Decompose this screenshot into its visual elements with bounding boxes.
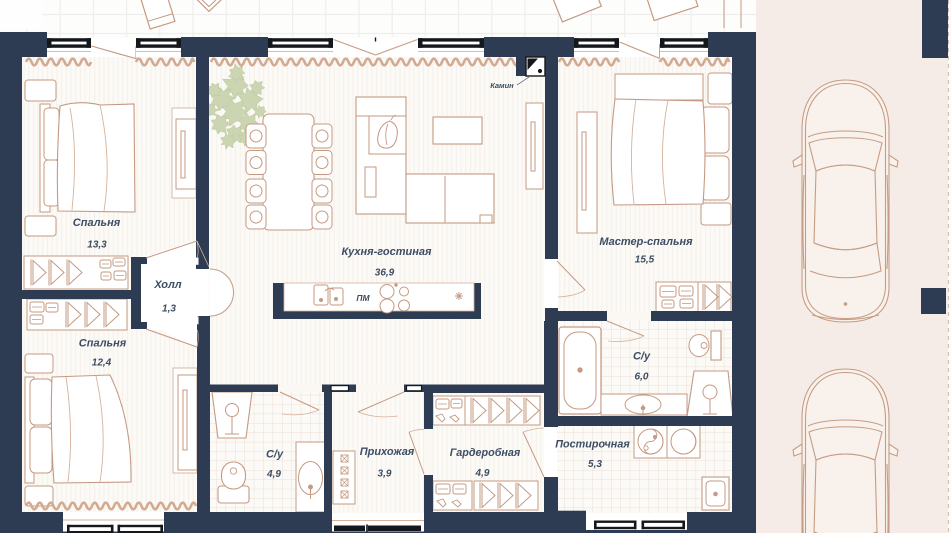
svg-text:Мастер-спальня: Мастер-спальня <box>599 236 693 248</box>
svg-text:ПМ: ПМ <box>356 293 370 303</box>
svg-text:5,3: 5,3 <box>588 459 602 470</box>
svg-text:36,9: 36,9 <box>375 268 395 279</box>
svg-text:6,0: 6,0 <box>635 372 649 383</box>
svg-text:Постирочная: Постирочная <box>555 439 630 451</box>
svg-text:Спальня: Спальня <box>79 338 127 350</box>
svg-text:С/у: С/у <box>633 351 651 363</box>
svg-text:Гардеробная: Гардеробная <box>450 447 521 459</box>
svg-text:4,9: 4,9 <box>475 468 490 479</box>
svg-text:3,9: 3,9 <box>378 469 392 480</box>
svg-text:1,3: 1,3 <box>162 304 176 315</box>
svg-text:Спальня: Спальня <box>73 217 121 229</box>
svg-text:С/у: С/у <box>266 449 284 461</box>
svg-text:15,5: 15,5 <box>635 255 655 266</box>
svg-text:4,9: 4,9 <box>266 469 281 480</box>
svg-text:Камин: Камин <box>490 81 514 90</box>
svg-text:13,3: 13,3 <box>87 240 107 251</box>
svg-text:Прихожая: Прихожая <box>360 446 415 458</box>
svg-text:12,4: 12,4 <box>92 358 112 369</box>
svg-text:Кухня-гостиная: Кухня-гостиная <box>342 246 432 258</box>
svg-text:Холл: Холл <box>153 279 181 291</box>
